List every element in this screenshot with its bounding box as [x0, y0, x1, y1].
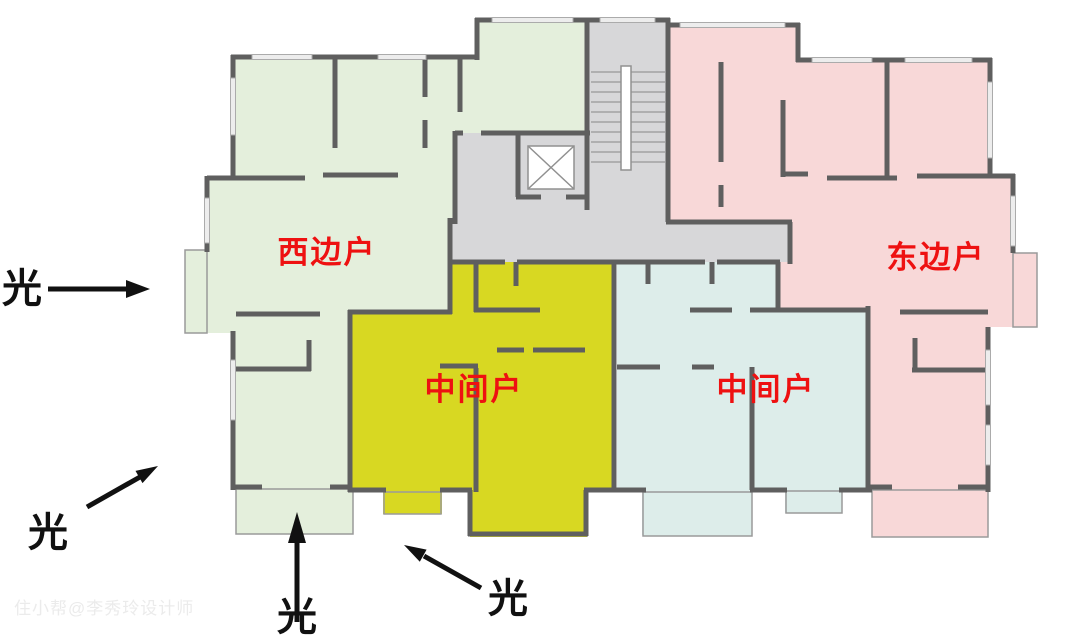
light-arrow-south-center: 光 — [404, 545, 528, 621]
middle-right-bottom-bay — [786, 491, 842, 513]
middle-right-balcony — [643, 492, 752, 536]
unit-middle-left-label: 中间户 — [425, 372, 524, 407]
stair-handrail — [621, 66, 631, 170]
unit-middle-right-label: 中间户 — [717, 372, 816, 407]
unit-west-label: 西边户 — [278, 235, 377, 270]
light-west-label: 光 — [2, 267, 42, 311]
elevator-shaft — [528, 146, 574, 189]
west-side-bay-window — [185, 250, 207, 333]
floor-plan: 西边户 东边户 中间户 中间户 光 光 光 光 住小帮@李秀玲设计师 — [0, 0, 1080, 635]
watermark: 住小帮@李秀玲设计师 — [14, 599, 194, 618]
arrowhead-icon — [126, 280, 150, 298]
arrowhead-icon — [136, 466, 159, 483]
light-arrow-west: 光 — [2, 267, 150, 311]
light-southwest-label: 光 — [28, 511, 68, 555]
east-bottom-balcony — [872, 490, 988, 537]
arrowhead-icon — [404, 545, 427, 562]
middle-left-bottom-bay — [384, 492, 441, 514]
floor-plan-screenshot: 西边户 东边户 中间户 中间户 光 光 光 光 住小帮@李秀玲设计师 — [0, 0, 1080, 635]
light-arrow-southwest: 光 — [28, 466, 158, 555]
unit-east-label: 东边户 — [887, 240, 986, 275]
east-side-bay-window — [1013, 253, 1037, 327]
light-south-center-label: 光 — [488, 577, 528, 621]
